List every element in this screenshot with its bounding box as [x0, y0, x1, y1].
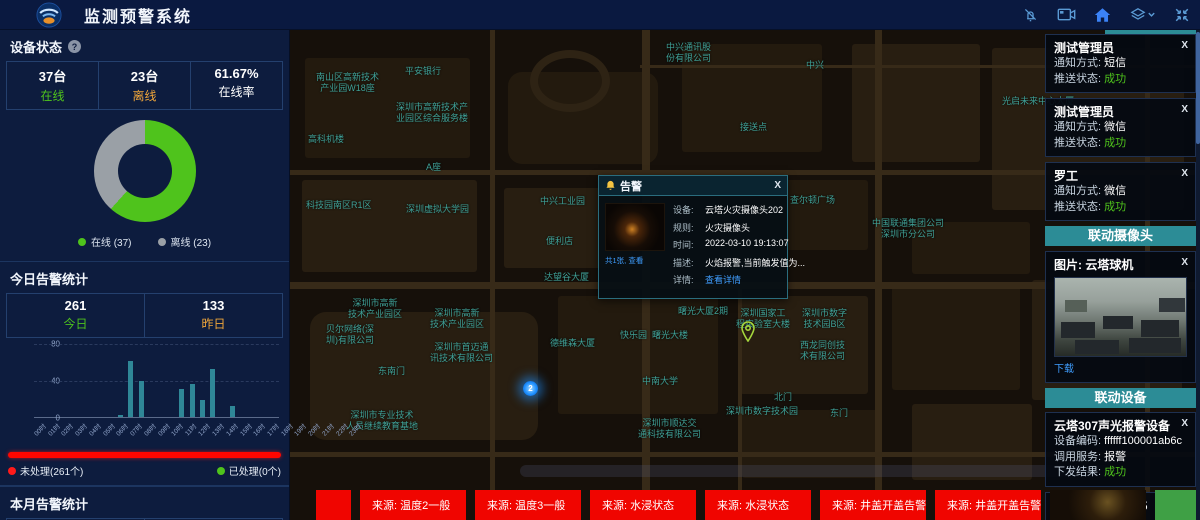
bar-slot: [34, 344, 44, 417]
stat-online: 37台 在线: [7, 62, 99, 109]
stat-today-label: 今日: [7, 315, 144, 332]
popup-field-label: 时间:: [673, 238, 705, 251]
bar-slot: [177, 344, 187, 417]
map-label: 深圳市顺达交 通科技有限公司: [638, 418, 701, 440]
popup-field-row: 描述:火焰报警,当前触发值为...: [673, 256, 805, 269]
legend-handled-dot: [217, 467, 225, 475]
help-icon[interactable]: ?: [68, 40, 81, 53]
notification-card-row: 推送状态: 成功: [1054, 200, 1187, 216]
alert-snapshot-caption[interactable]: 共1张, 查看: [605, 255, 665, 266]
popup-field-row: 规则:火灾摄像头: [673, 221, 805, 234]
layers-icon[interactable]: [1129, 7, 1156, 23]
bar-slot: [248, 344, 258, 417]
notification-card-name: 测试管理员: [1054, 40, 1187, 56]
page-title: 监测预警系统: [84, 3, 192, 27]
right-sidebar: 测试管理员X通知方式: 短信推送状态: 成功测试管理员X通知方式: 微信推送状态…: [1044, 30, 1197, 520]
notification-card-row-label: 推送状态:: [1054, 137, 1104, 149]
notification-card-row: 推送状态: 成功: [1054, 72, 1187, 88]
linked-device-card-row-label: 设备编码:: [1054, 435, 1104, 447]
bar-slot: [65, 344, 75, 417]
notification-card-row: 通知方式: 短信: [1054, 56, 1187, 72]
ticker-alert-text: 来源: 井盖开盖告警: [832, 497, 926, 513]
popup-field-value: 2022-03-10 19:13:07: [705, 238, 789, 251]
cluster-count: 2: [528, 384, 532, 393]
stat-yesterday-value: 133: [145, 298, 282, 313]
bars-container: [34, 344, 279, 417]
topbar-icons: [1022, 6, 1190, 23]
stat-online-label: 在线: [7, 87, 98, 104]
stat-online-value: 37台: [7, 66, 98, 85]
notification-card-row-label: 通知方式:: [1054, 121, 1104, 133]
bar-slot: [105, 344, 115, 417]
alert-popup-body: 共1张, 查看 设备:云塔火灾摄像头202规则:火灾摄像头时间:2022-03-…: [599, 196, 787, 298]
map-label: 贝尔网络(深 圳)有限公司: [326, 324, 374, 346]
map-label: 中南大学: [642, 376, 678, 387]
popup-field-row: 时间:2022-03-10 19:13:07: [673, 238, 805, 251]
device-status-panel: 设备状态 ? 37台 在线 23台 离线 61.67% 在线率: [0, 30, 289, 249]
bar-slot: [116, 344, 126, 417]
right-scrollbar[interactable]: [1196, 30, 1200, 520]
popup-field-row: 设备:云塔火灾摄像头202: [673, 203, 805, 216]
map-label: A座: [426, 162, 441, 173]
map-label: 北门: [774, 392, 792, 403]
ticker-alert-text: 来源: 井盖开盖告警: [947, 497, 1041, 513]
legend-unhandled: 未处理(261个): [8, 463, 83, 478]
popup-field-label: 描述:: [673, 256, 705, 269]
legend-online: 在线 (37): [78, 234, 132, 249]
download-link[interactable]: 下载: [1054, 360, 1074, 375]
close-icon[interactable]: X: [1181, 419, 1188, 429]
legend-online-label: 在线 (37): [91, 234, 132, 249]
map-block: [852, 44, 980, 162]
alert-ticker: 来源: 温度2一般来源: 温度3一般来源: 水浸状态来源: 水浸状态来源: 井盖…: [290, 490, 1200, 520]
linked-device-card-row-value: 报警: [1104, 451, 1126, 463]
notifications-muted-icon[interactable]: [1022, 6, 1039, 23]
notification-card-row-value: 成功: [1104, 73, 1126, 85]
popup-field-value: 火焰报警,当前触发值为...: [705, 256, 805, 269]
linked-device-card-row: 设备编码: ffffff100001ab6c: [1054, 434, 1187, 450]
device-status-title: 设备状态: [10, 37, 62, 56]
bar-slot: [269, 344, 279, 417]
home-icon[interactable]: [1094, 7, 1111, 23]
chevron-down-icon: [1147, 10, 1156, 19]
bar-chart-x-labels: 00时01时02时03时04时05时06时07时08时09时10时11时12时1…: [34, 420, 279, 430]
map-block: [530, 50, 610, 112]
map-label: 中兴通讯股 份有限公司: [666, 42, 711, 64]
ticker-alert-thumbnail[interactable]: [1050, 490, 1146, 520]
legend-offline-label: 离线 (23): [171, 234, 212, 249]
map-label: 深圳市高新 技术产业园区: [430, 308, 484, 330]
donut-hole: [118, 144, 172, 198]
ticker-alert-item[interactable]: 来源: 水浸状态: [590, 490, 696, 520]
bar-slot: [218, 344, 228, 417]
notification-card-name: 罗工: [1054, 168, 1187, 184]
stat-yesterday: 133 昨日: [145, 294, 282, 337]
bar-slot: [228, 344, 238, 417]
stat-today: 261 今日: [7, 294, 145, 337]
stat-offline-label: 离线: [99, 87, 190, 104]
month-alarms-panel: 本月告警统计 763 1146: [0, 485, 289, 520]
bar-slot: [238, 344, 248, 417]
ticker-alert-item[interactable]: 来源: 井盖开盖告警: [935, 490, 1041, 520]
map-road: [490, 30, 495, 520]
notification-card-row-value: 短信: [1104, 57, 1126, 69]
map-label: 深圳市高新 技术产业园区: [348, 298, 402, 320]
camera-snapshot-image[interactable]: [1054, 277, 1187, 357]
map-label: 接送点: [740, 122, 767, 133]
map-label: 深圳市数字技术园: [726, 406, 798, 417]
bar-slot: [85, 344, 95, 417]
notification-card-row-value: 成功: [1104, 137, 1126, 149]
notification-card-name: 测试管理员: [1054, 104, 1187, 120]
linked-device-card-row-value: ffffff100001ab6c: [1104, 435, 1182, 447]
linked-device-card-name: 云塔307声光报警设备: [1054, 418, 1187, 434]
map-label: 科技园南区R1区: [306, 200, 372, 211]
bar-slot: [75, 344, 85, 417]
close-icon[interactable]: X: [1181, 105, 1188, 115]
map-block: [302, 180, 477, 272]
today-alarms-stats: 261 今日 133 昨日: [6, 293, 283, 338]
map-label: 便利店: [546, 236, 573, 247]
bar-chart-plot: 0 40 80: [34, 344, 279, 418]
today-alarms-panel: 今日告警统计 261 今日 133 昨日 0 40 80: [0, 262, 289, 478]
ticker-alert-thumbnail-green[interactable]: [1155, 490, 1200, 520]
bar-14时: [179, 389, 184, 417]
map-label: 高科机楼: [308, 134, 344, 145]
left-sidebar: 设备状态 ? 37台 在线 23台 离线 61.67% 在线率: [0, 30, 290, 520]
stat-today-value: 261: [7, 298, 144, 313]
stat-online-rate-label: 在线率: [191, 83, 282, 100]
linked-device-card-row-label: 下发结果:: [1054, 466, 1104, 478]
linked-camera-card: 图片: 云塔球机 X 下载: [1045, 251, 1196, 383]
scrollbar-thumb[interactable]: [1196, 32, 1200, 144]
alert-popup-title: 告警: [620, 178, 642, 194]
bar-slot: [126, 344, 136, 417]
bar-19时: [230, 406, 235, 417]
notification-cards: 测试管理员X通知方式: 短信推送状态: 成功测试管理员X通知方式: 微信推送状态…: [1044, 34, 1197, 221]
video-camera-icon[interactable]: [1057, 7, 1076, 22]
notification-card-row-label: 推送状态:: [1054, 201, 1104, 213]
app-logo-icon: [36, 2, 62, 28]
map-label: 中兴: [806, 60, 824, 71]
ticker-alert-text: 来源: 温度3一般: [487, 497, 565, 513]
fullscreen-icon[interactable]: [1174, 7, 1190, 23]
popup-field-label: 详情:: [673, 273, 705, 286]
bar-slot: [258, 344, 268, 417]
popup-field-value: 云塔火灾摄像头202: [705, 203, 783, 216]
notification-card: 测试管理员X通知方式: 短信推送状态: 成功: [1045, 34, 1196, 93]
today-alarms-title: 今日告警统计: [10, 269, 88, 288]
device-donut-chart: [94, 120, 196, 222]
notification-card-row-value: 成功: [1104, 201, 1126, 213]
linked-device-card-row: 调用服务: 报警: [1054, 450, 1187, 466]
app: 监测预警系统: [0, 0, 1200, 520]
ticker-alert-item[interactable]: 来源: 水浸状态: [705, 490, 811, 520]
bar-slot: [136, 344, 146, 417]
linked-device-card-row-value: 成功: [1104, 466, 1126, 478]
notification-card-row: 通知方式: 微信: [1054, 184, 1187, 200]
stat-online-rate-value: 61.67%: [191, 66, 282, 81]
bar-09时: [128, 361, 133, 417]
bar-slot: [197, 344, 207, 417]
map-label: 中国联通集团公司 深圳市分公司: [872, 218, 944, 240]
notification-card-row-label: 通知方式:: [1054, 185, 1104, 197]
legend-offline-dot: [158, 238, 166, 246]
close-icon[interactable]: X: [1181, 41, 1188, 51]
notification-card-row: 推送状态: 成功: [1054, 136, 1187, 152]
bar-17时: [210, 369, 215, 417]
notification-card-row: 通知方式: 微信: [1054, 120, 1187, 136]
linked-device-card: 云塔307声光报警设备X设备编码: ffffff100001ab6c调用服务: …: [1045, 412, 1196, 487]
stat-offline: 23台 离线: [99, 62, 191, 109]
bar-15时: [190, 384, 195, 417]
map-label: 中兴工业园: [540, 196, 585, 207]
topbar: 监测预警系统: [0, 0, 1200, 30]
map-label: 快乐园: [620, 330, 647, 341]
bar-slot: [207, 344, 217, 417]
ticker-alert-item[interactable]: 来源: 温度2一般: [360, 490, 466, 520]
view-details-link[interactable]: 查看详情: [705, 273, 741, 286]
map-cluster-marker[interactable]: 2: [523, 381, 538, 396]
notification-card-row-value: 微信: [1104, 121, 1126, 133]
map-label: 深圳市首迈通 讯技术有限公司: [430, 342, 493, 364]
notification-card: 测试管理员X通知方式: 微信推送状态: 成功: [1045, 98, 1196, 157]
camera-card-title: 图片: 云塔球机: [1054, 257, 1187, 273]
bar-slot: [187, 344, 197, 417]
ticker-alert-text: 来源: 水浸状态: [602, 497, 674, 513]
legend-unhandled-dot: [8, 467, 16, 475]
map-label: 曙光大厦2期: [678, 306, 728, 317]
ticker-alert-text: 来源: 温度2一般: [372, 497, 450, 513]
popup-close-icon[interactable]: X: [774, 181, 781, 191]
bar-10时: [139, 381, 144, 418]
map-label: 达望谷大厦: [544, 272, 589, 283]
map-label: 东南门: [378, 366, 405, 377]
ticker-alert-text: 来源: 水浸状态: [717, 497, 789, 513]
close-icon[interactable]: X: [1181, 169, 1188, 179]
bar-08时: [118, 415, 123, 417]
notification-card-row-value: 微信: [1104, 185, 1126, 197]
bar-16时: [200, 400, 205, 417]
popup-field-value: 火灾摄像头: [705, 221, 750, 234]
popup-field-label: 设备:: [673, 203, 705, 216]
popup-field-row: 详情:查看详情: [673, 273, 805, 286]
ticker-alert-item[interactable]: 来源: 温度3一般: [475, 490, 581, 520]
stat-offline-value: 23台: [99, 66, 190, 85]
legend-handled: 已处理(0个): [217, 463, 281, 478]
map-label: 南山区高新技术 产业园W18座: [316, 72, 379, 94]
map-label: 平安银行: [405, 66, 441, 77]
legend-handled-label: 已处理(0个): [229, 463, 281, 478]
map-label: 曙光大楼: [652, 330, 688, 341]
hourly-alarm-bar-chart: 0 40 80 00时01时02时03时04时05时06时07时08时09时10…: [6, 344, 283, 448]
map-road: [875, 30, 882, 520]
map-attribution-bar: [520, 465, 1110, 477]
ticker-alert-item[interactable]: 来源: 井盖开盖告警: [820, 490, 926, 520]
linked-device-header[interactable]: 联动设备: [1045, 388, 1196, 408]
bar-slot: [146, 344, 156, 417]
notification-card: 罗工X通知方式: 微信推送状态: 成功: [1045, 162, 1196, 221]
map-label: 德维森大厦: [550, 338, 595, 349]
alarm-bell-icon: [605, 180, 616, 191]
alert-popup: 告警 X 共1张, 查看 设备:云塔火灾摄像头202规则:火灾摄像头时间:202…: [598, 175, 788, 299]
map-label: 深圳市高新技术产 业园区综合服务楼: [396, 102, 468, 124]
map-label: 西龙同创技 术有限公司: [800, 340, 845, 362]
linked-camera-header[interactable]: 联动摄像头: [1045, 226, 1196, 246]
linked-device-card-row: 下发结果: 成功: [1054, 465, 1187, 481]
bar-slot: [156, 344, 166, 417]
bar-slot: [44, 344, 54, 417]
bar-slot: [95, 344, 105, 417]
map-label: 深圳市数字 技术园B区: [802, 308, 847, 330]
alert-snapshot-thumbnail[interactable]: [605, 203, 665, 251]
linked-device-card-row-label: 调用服务:: [1054, 451, 1104, 463]
popup-field-label: 规则:: [673, 221, 705, 234]
ticker-item-partial[interactable]: [316, 490, 351, 520]
bar-slot: [54, 344, 64, 417]
map-pin-icon[interactable]: [741, 321, 755, 347]
donut-legend: 在线 (37) 离线 (23): [0, 234, 289, 249]
progress-legend: 未处理(261个) 已处理(0个): [8, 463, 281, 478]
map-label: 东门: [830, 408, 848, 419]
legend-offline: 离线 (23): [158, 234, 212, 249]
alert-popup-header: 告警 X: [599, 176, 787, 196]
alert-popup-fields: 设备:云塔火灾摄像头202规则:火灾摄像头时间:2022-03-10 19:13…: [665, 203, 805, 291]
legend-unhandled-label: 未处理(261个): [20, 463, 83, 478]
stat-online-rate: 61.67% 在线率: [191, 62, 282, 109]
map-label: 深圳虚拟大学园: [406, 204, 469, 215]
device-status-stats: 37台 在线 23台 离线 61.67% 在线率: [6, 61, 283, 110]
notification-card-row-label: 推送状态:: [1054, 73, 1104, 85]
stat-yesterday-label: 昨日: [145, 315, 282, 332]
bar-slot: [167, 344, 177, 417]
map-block: [892, 282, 1020, 390]
legend-online-dot: [78, 238, 86, 246]
close-icon[interactable]: X: [1181, 258, 1188, 268]
notification-card-row-label: 通知方式:: [1054, 57, 1104, 69]
month-alarms-title: 本月告警统计: [10, 494, 88, 513]
unhandled-progress-bar: [8, 452, 281, 458]
